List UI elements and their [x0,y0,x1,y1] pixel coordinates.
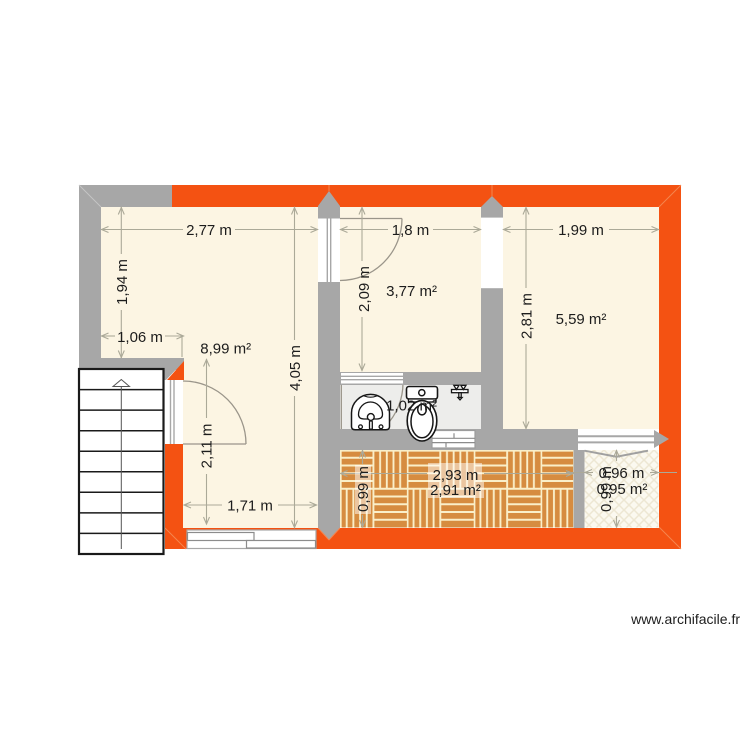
svg-text:www.archifacile.fr: www.archifacile.fr [630,611,740,627]
svg-text:0,99 m: 0,99 m [355,466,372,512]
svg-text:4,05 m: 4,05 m [287,345,304,391]
svg-text:1,71 m: 1,71 m [227,498,273,515]
svg-text:3,77 m²: 3,77 m² [386,283,437,300]
svg-text:8,99 m²: 8,99 m² [200,341,251,358]
svg-text:2,77 m: 2,77 m [186,222,232,239]
svg-text:1,94 m: 1,94 m [114,259,131,305]
svg-text:0,99 m: 0,99 m [598,466,615,512]
svg-text:1,06 m: 1,06 m [117,329,163,346]
svg-text:1,02 m²: 1,02 m² [386,398,437,415]
svg-text:1,8 m: 1,8 m [392,222,430,239]
svg-text:5,59 m²: 5,59 m² [556,311,607,328]
svg-text:1,99 m: 1,99 m [558,222,604,239]
svg-text:2,11 m: 2,11 m [199,424,216,469]
svg-text:2,09 m: 2,09 m [356,266,373,312]
svg-text:2,91 m²: 2,91 m² [430,482,481,499]
svg-text:2,81 m: 2,81 m [519,293,536,339]
